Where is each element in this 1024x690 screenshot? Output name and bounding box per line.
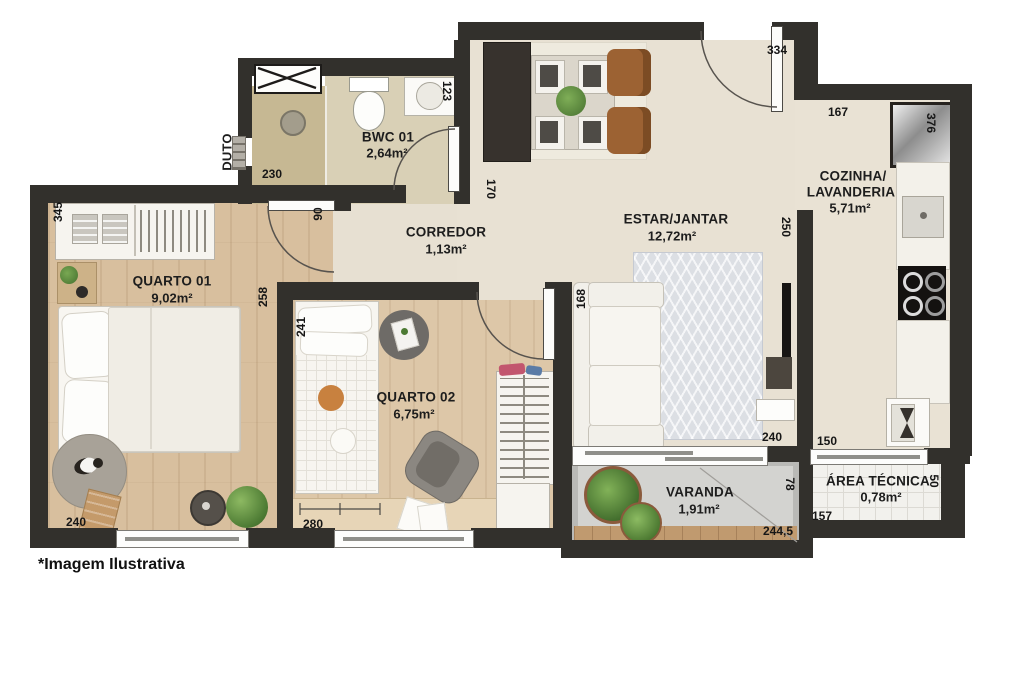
dim-quarto01-door: 90 (311, 207, 325, 220)
room-label-duto: DUTO (220, 133, 235, 170)
wall (810, 84, 972, 100)
laundry-tank-basin (891, 404, 915, 442)
duvet (108, 307, 240, 452)
folded-towels (72, 214, 98, 244)
dim-corridor-opening: 170 (484, 179, 498, 199)
wall (30, 528, 118, 548)
pillow-orange (318, 385, 344, 411)
chair-seat (540, 65, 558, 87)
room-label-area-tecnica: ÁREA TÉCNICA (826, 474, 930, 489)
room-label-corredor: CORREDOR (406, 225, 486, 240)
window (116, 530, 249, 548)
sliding-panel (665, 457, 763, 461)
side-table-dot (202, 502, 210, 510)
pillow (300, 331, 369, 357)
room-area-varanda: 1,91m² (678, 502, 719, 517)
dim-area-tecnica-depth: 50 (927, 474, 941, 487)
nightstand-plant (60, 266, 78, 284)
dog-head (93, 458, 103, 468)
room-label-quarto01: QUARTO 01 (133, 274, 212, 289)
dining-chair (578, 60, 608, 94)
room-area-quarto02: 6,75m² (393, 407, 434, 422)
dim-area-tecnica-width: 157 (812, 509, 832, 523)
dining-chair (578, 116, 608, 150)
dining-armchair-brown (607, 49, 651, 96)
chair-seat (583, 121, 601, 143)
wall (277, 282, 293, 542)
footnote: *Imagem Ilustrativa (38, 556, 185, 574)
shower-drain (280, 110, 306, 136)
dim-fridge-side: 376 (924, 113, 938, 133)
toilet-bowl (353, 91, 385, 131)
window-pane (817, 455, 920, 459)
folded-towels (102, 214, 128, 244)
burner (903, 296, 923, 316)
plant-large (226, 486, 268, 528)
room-area-bwc: 2,64m² (366, 146, 407, 161)
burner (925, 296, 945, 316)
dim-entry-wall: 334 (767, 43, 787, 57)
dim-quarto01-left: 345 (51, 202, 65, 222)
sofa-cushion (589, 365, 661, 426)
wall (30, 185, 246, 203)
dim-shower-width: 230 (262, 167, 282, 181)
wall (561, 540, 813, 558)
armchair-seat (412, 438, 463, 492)
faucet (920, 212, 927, 219)
dining-chair (535, 116, 565, 150)
wall (238, 58, 252, 138)
wall (30, 185, 48, 548)
wall (797, 210, 813, 458)
window (810, 449, 928, 465)
room-label-cozinha-2: LAVANDERIA (807, 185, 896, 200)
wardrobe-divider (134, 205, 136, 256)
dim-bwc-width: 123 (440, 81, 454, 101)
bed-grid-blanket (296, 355, 376, 491)
sofa-armrest (588, 282, 664, 308)
wardrobe-hangers (140, 210, 206, 252)
duvet-fold (150, 308, 152, 449)
window-pane (125, 537, 239, 541)
dim-sofa-wall: 168 (574, 289, 588, 309)
door-leaf-entry (771, 26, 783, 112)
room-area-estar: 12,72m² (648, 229, 696, 244)
toilet-tank (349, 77, 389, 92)
dim-kitchen-top: 167 (828, 105, 848, 119)
laptop-dot (401, 328, 408, 335)
cooktop (898, 266, 946, 320)
lamp (76, 286, 88, 298)
wall (471, 528, 571, 548)
wall (950, 84, 972, 456)
wardrobe-2-rail (523, 375, 525, 479)
room-area-cozinha: 5,71m² (829, 201, 870, 216)
floor-plan: BWC 01 2,64m² CORREDOR 1,13m² ESTAR/JANT… (0, 0, 1024, 690)
pillow-round (330, 428, 356, 454)
chair-seat (540, 121, 558, 143)
tv-shelf (756, 399, 795, 421)
shaft-box (254, 64, 322, 94)
kitchen-counter (896, 320, 950, 404)
dim-estar-cozinha-wall: 250 (779, 217, 793, 237)
dining-armchair-brown (607, 107, 651, 154)
room-area-area-tecnica: 0,78m² (860, 490, 901, 505)
door-leaf-bwc (448, 126, 460, 192)
dim-kitchen-bottom: 150 (817, 434, 837, 448)
cabinet-2 (496, 483, 550, 534)
sliding-panel (585, 451, 693, 455)
burner (925, 272, 945, 292)
chair-seat (583, 65, 601, 87)
dim-varanda-depth: 78 (783, 477, 797, 490)
sideboard (483, 42, 531, 162)
sofa-cushion (589, 306, 661, 367)
door-leaf-quarto02 (543, 288, 555, 360)
wall (553, 282, 572, 548)
room-label-cozinha-1: COZINHA/ (820, 169, 887, 184)
window (334, 530, 474, 548)
wall (458, 22, 704, 40)
tv-cabinet (766, 357, 792, 389)
fridge (890, 102, 954, 168)
potted-plant (620, 502, 662, 544)
burner (903, 272, 923, 292)
window-pane (343, 537, 464, 541)
wall (246, 528, 335, 548)
room-area-quarto01: 9,02m² (151, 291, 192, 306)
room-label-quarto02: QUARTO 02 (377, 390, 456, 405)
clothes-pink (499, 363, 526, 376)
dining-plant (556, 86, 586, 116)
dim-quarto02-bottom: 280 (303, 517, 323, 531)
dim-quarto01-right: 258 (256, 287, 270, 307)
room-label-varanda: VARANDA (666, 485, 734, 500)
dim-varanda-bottom: 244,5 (763, 524, 793, 538)
dim-quarto02-left: 241 (294, 317, 308, 337)
wall (277, 282, 479, 300)
room-area-corredor: 1,13m² (425, 242, 466, 257)
room-label-estar: ESTAR/JANTAR (624, 212, 729, 227)
dim-quarto01-bottom: 240 (66, 515, 86, 529)
dim-estar-bottom: 240 (762, 430, 782, 444)
sliding-door (572, 446, 768, 466)
room-label-bwc: BWC 01 (362, 130, 414, 145)
